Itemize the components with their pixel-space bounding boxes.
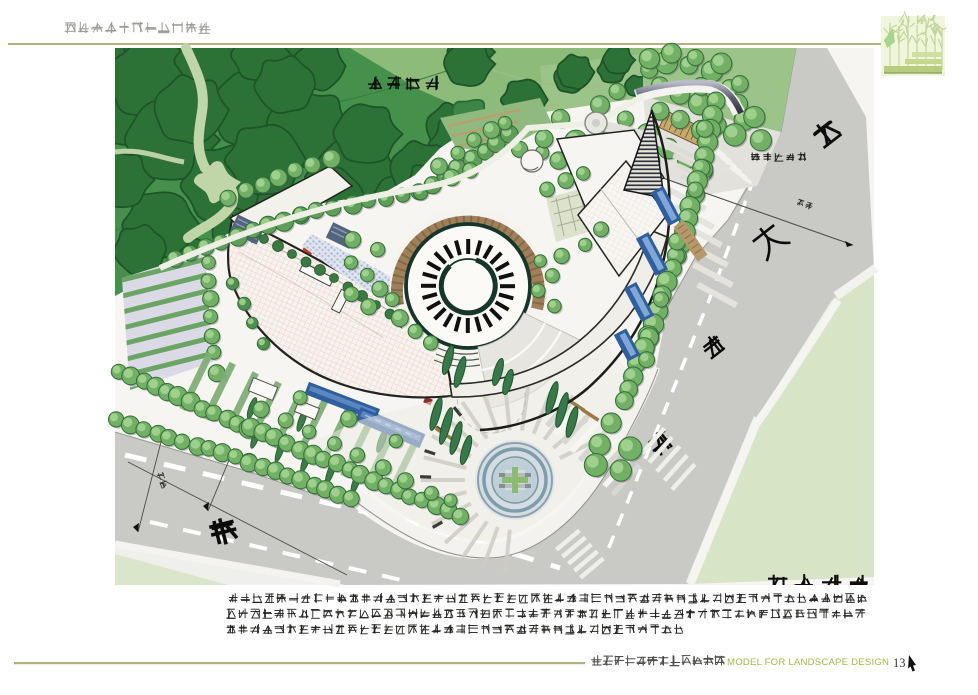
svg-text:13: 13 <box>893 656 906 670</box>
svg-text:MODEL FOR LANDSCAPE DESIGN: MODEL FOR LANDSCAPE DESIGN <box>727 657 889 668</box>
